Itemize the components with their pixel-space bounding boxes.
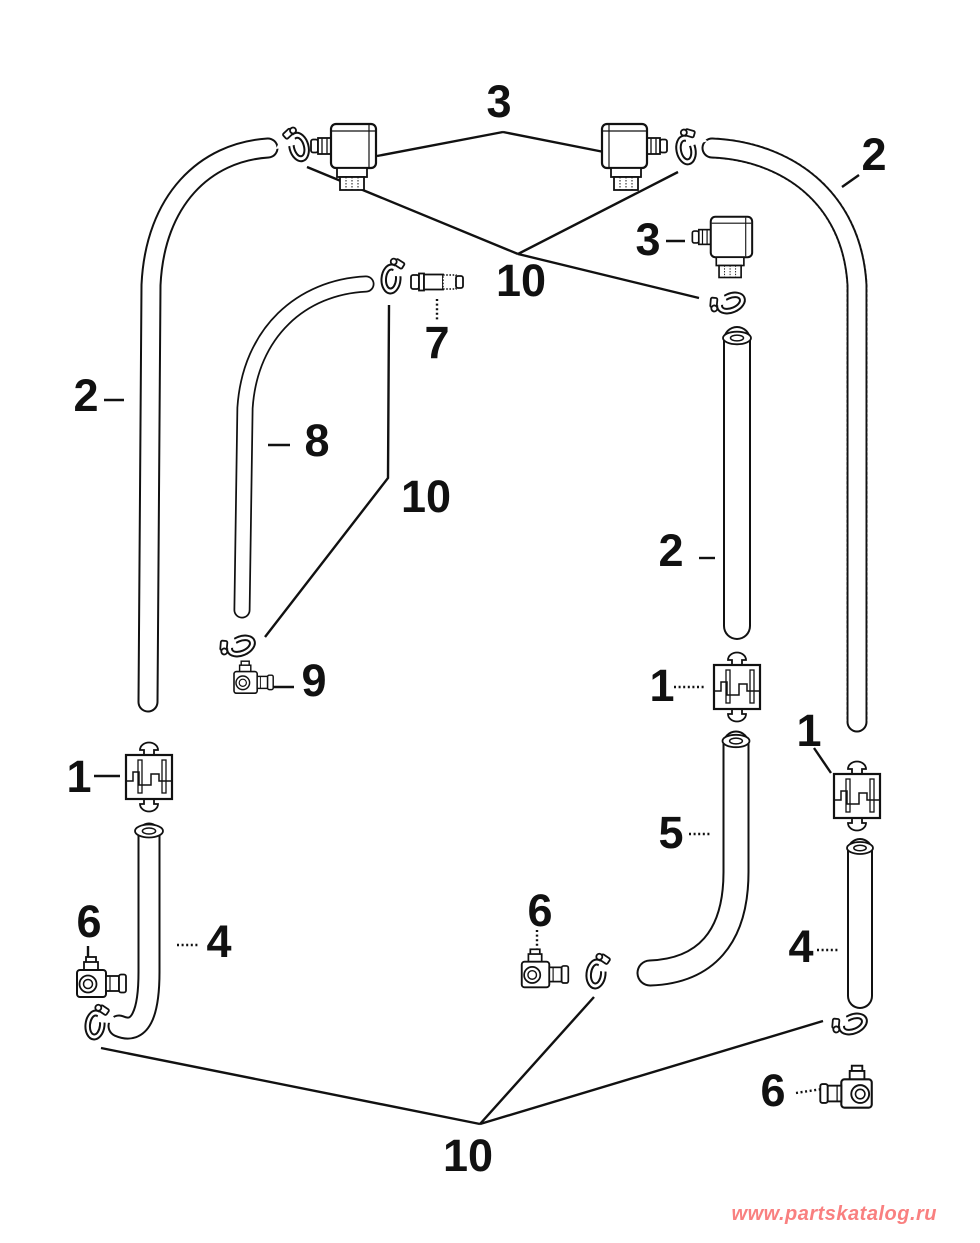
- elbow-fitting-6-mid: [522, 949, 569, 987]
- elbow-fitting-6-right: [820, 1066, 871, 1108]
- callout-7: 7: [424, 317, 449, 368]
- elbow-fitting-9: [234, 661, 273, 693]
- parts-diagram-canvas: 3 10 2 3 7 2 8 10 2 1 9 1 1 5 6 6 4 4 6 …: [0, 0, 980, 1243]
- callout-6-left: 6: [76, 896, 101, 947]
- elbow-fitting-3-right-top: [602, 124, 667, 190]
- callout-10-mid: 10: [401, 471, 451, 522]
- elbow-fitting-3-left: [311, 124, 376, 190]
- leader-line: [101, 1048, 480, 1124]
- hose-clamp-bottom-mid: [585, 950, 621, 991]
- connector-1-right: [834, 762, 880, 831]
- callout-1-left: 1: [66, 751, 91, 802]
- callout-4-left: 4: [206, 916, 231, 967]
- callout-8: 8: [304, 415, 329, 466]
- connector-1-left: [126, 743, 172, 812]
- barb-fitting-7: [411, 274, 463, 291]
- callout-6-right: 6: [760, 1065, 785, 1116]
- callout-1-right: 1: [796, 705, 821, 756]
- callout-2-mid: 2: [658, 525, 683, 576]
- callout-2-left: 2: [73, 370, 98, 421]
- hose-4-right: [847, 842, 873, 996]
- callout-9: 9: [301, 655, 326, 706]
- leader-line: [265, 305, 389, 637]
- callout-3-right: 3: [635, 214, 660, 265]
- leader-line: [503, 132, 604, 152]
- callout-3-top: 3: [486, 76, 511, 127]
- callout-1-mid: 1: [649, 660, 674, 711]
- watermark-text: www.partskatalog.ru: [732, 1203, 937, 1225]
- leader-line: [377, 132, 503, 156]
- callout-6-mid: 6: [527, 885, 552, 936]
- callout-2-right-top: 2: [861, 129, 886, 180]
- callout-5: 5: [658, 807, 683, 858]
- connector-1-mid: [714, 653, 760, 722]
- elbow-fitting-6-left: [77, 957, 126, 997]
- leader-line-dotted: [796, 1089, 822, 1093]
- hose-clamp-hose8-top: [381, 255, 416, 295]
- callout-4-right: 4: [788, 921, 813, 972]
- leader-line: [480, 997, 594, 1124]
- leader-line: [842, 175, 859, 187]
- hose-4-left: [119, 825, 163, 1029]
- callout-10-top: 10: [496, 255, 546, 306]
- callout-labels: 3 10 2 3 7 2 8 10 2 1 9 1 1 5 6 6 4 4 6 …: [66, 76, 886, 1181]
- hose-2-vertical-tube: [723, 332, 751, 626]
- leader-line: [307, 167, 518, 254]
- elbow-fitting-3-right-mid: [692, 217, 752, 278]
- hose-clamp-right-mid: [701, 276, 748, 321]
- callout-10-bottom: 10: [443, 1130, 493, 1181]
- hose-clamp-hose8-bottom: [211, 619, 258, 664]
